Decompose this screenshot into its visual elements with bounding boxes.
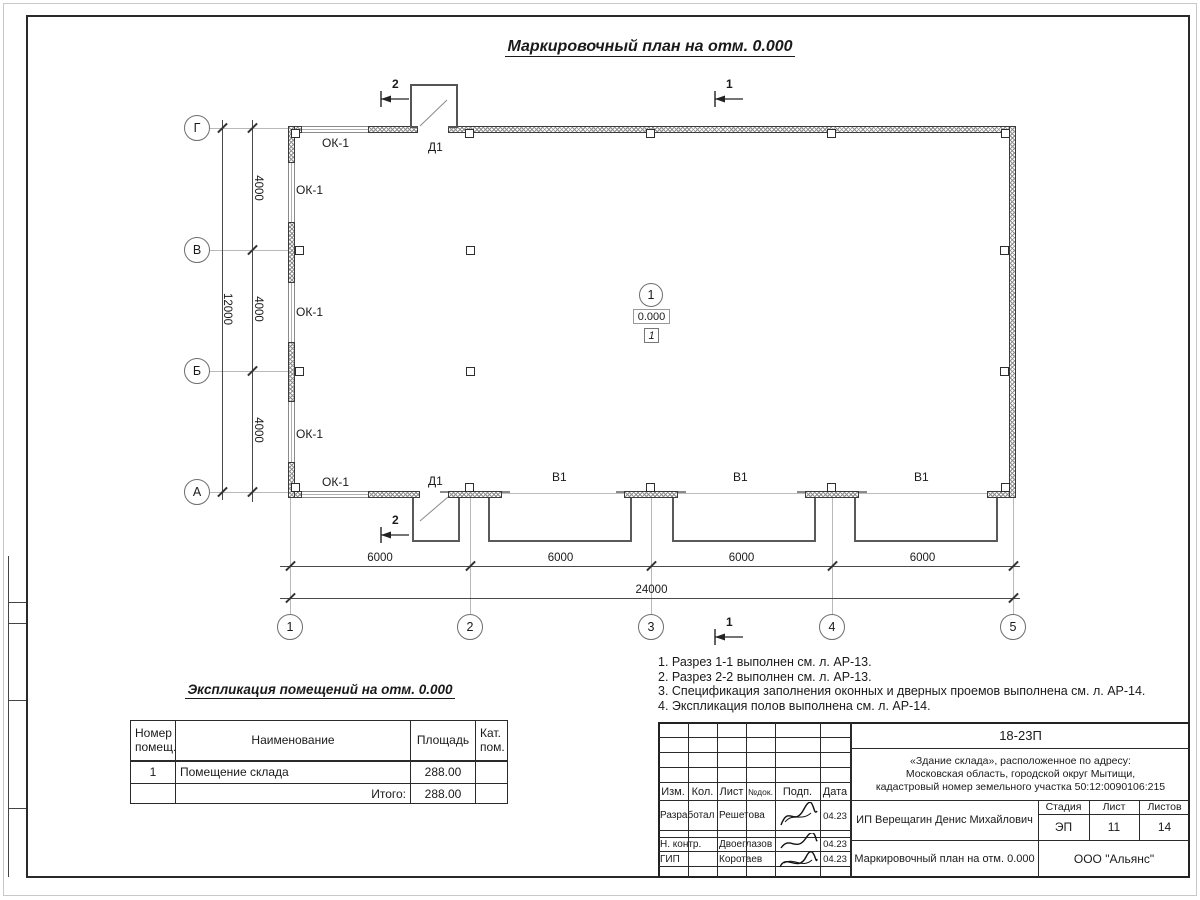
column-mark [646, 129, 655, 138]
room-row-cat [476, 761, 508, 784]
axis-label: В [193, 243, 201, 257]
notes-block: 1. Разрез 1-1 выполнен см. л. АР-13. 2. … [658, 655, 1145, 713]
dim-line-total [280, 598, 1020, 599]
dim-value: 6000 [470, 552, 651, 564]
room-row-area: 288.00 [411, 761, 476, 784]
sheet-value: 11 [1089, 814, 1139, 840]
stamp-grid-line [658, 752, 850, 753]
signature-nkontr-gip [776, 833, 820, 875]
stamp-col-ndok: №док. [746, 783, 775, 800]
role-name: Решетова [719, 810, 775, 821]
dim-value-left: 4000 [252, 412, 264, 448]
window-label: ОК-1 [322, 136, 349, 150]
note-line: 2. Разрез 2-2 выполнен см. л. АР-13. [658, 670, 1145, 685]
gate-label: В1 [914, 470, 929, 484]
role-date: 04.23 [820, 853, 850, 866]
note-line: 4. Экспликация полов выполнена см. л. АР… [658, 699, 1145, 714]
axis-bubble-5: 5 [1000, 614, 1026, 640]
section-number: 2 [392, 513, 399, 527]
axis-label: 3 [648, 620, 655, 634]
explication-table: Номер помещ. Наименование Площадь Кат. п… [130, 720, 508, 804]
axis-label: 4 [829, 620, 836, 634]
dim-value-left: 4000 [252, 291, 264, 327]
section-arrow-2-bottom [377, 524, 413, 546]
window-label: ОК-1 [296, 305, 323, 319]
column-mark [295, 367, 304, 376]
stamp-grid-line [658, 830, 850, 831]
gate-frame-stub [797, 491, 805, 493]
window-left-2 [288, 283, 295, 342]
dim-total-value: 24000 [290, 584, 1013, 596]
window-left-3 [288, 402, 295, 462]
role-label: Разработал [660, 810, 718, 821]
stamp-grid-line [658, 737, 850, 738]
role-name: Двоеглазов [719, 839, 775, 850]
floor-type-value: 1 [648, 330, 654, 342]
col-header-cat: Кат. пом. [476, 721, 508, 761]
dim-value-left: 4000 [252, 170, 264, 206]
gate-ramp-3 [854, 498, 998, 542]
stamp-grid-line [658, 851, 850, 852]
wall-right [1009, 126, 1016, 498]
stamp-grid-line [658, 767, 850, 768]
plan-title-text: Маркировочный план на отм. 0.000 [505, 38, 794, 57]
plan-title: Маркировочный план на отм. 0.000 [400, 38, 900, 56]
wall-left-pier-v [288, 222, 295, 283]
col-header-name: Наименование [176, 721, 411, 761]
client-name: ИП Верещагин Денис Михайлович [851, 800, 1038, 840]
axis-label: 2 [467, 620, 474, 634]
project-code: 18-23П [851, 722, 1190, 748]
explication-title-text: Экспликация помещений на отм. 0.000 [185, 682, 454, 699]
col-header-num: Номер помещ. [131, 721, 176, 761]
axis-label: Б [193, 364, 201, 378]
wall-left-corner-bottom [288, 462, 295, 498]
stamp-grid-line [658, 866, 850, 867]
room-row-num: 1 [131, 761, 176, 784]
door-label-bottom: Д1 [428, 474, 443, 488]
window-top [302, 126, 368, 133]
axis-bubble-4: 4 [819, 614, 845, 640]
column-mark [1000, 367, 1009, 376]
margin-box-divider [8, 700, 26, 701]
wall-left-pier-b [288, 342, 295, 402]
gate-frame-stub [616, 491, 624, 493]
dim-value: 6000 [832, 552, 1013, 564]
axis-bubble-a: А [184, 479, 210, 505]
gate-frame-stub [440, 491, 448, 493]
axis-label: А [193, 485, 201, 499]
stamp-grid-line [658, 800, 850, 801]
drawing-sheet: Маркировочный план на отм. 0.000 [0, 0, 1200, 900]
axis-bubble-3: 3 [638, 614, 664, 640]
sheets-value: 14 [1139, 814, 1190, 840]
sheet-label: Лист [1089, 800, 1139, 814]
margin-box-line [8, 556, 9, 877]
gate-leaf-2 [678, 493, 805, 494]
column-mark [291, 129, 300, 138]
margin-box-divider [8, 602, 26, 603]
dim-value: 6000 [651, 552, 832, 564]
column-mark [646, 483, 655, 492]
door-label-top: Д1 [428, 140, 443, 154]
total-area: 288.00 [411, 784, 476, 804]
total-row-cat [476, 784, 508, 804]
window-bottom [302, 491, 368, 498]
column-mark [465, 483, 474, 492]
section-number: 1 [726, 615, 733, 629]
axis-label: 1 [287, 620, 294, 634]
stamp-col-izm: Изм. [658, 783, 688, 800]
elevation-mark: 0.000 [633, 309, 670, 324]
stamp-col-podp: Подп. [775, 783, 820, 800]
section-number: 1 [726, 77, 733, 91]
gate-frame-stub [678, 491, 686, 493]
column-mark [827, 129, 836, 138]
role-name: Коротаев [719, 854, 775, 865]
stage-label: Стадия [1038, 800, 1089, 814]
section-arrow-2-top [377, 88, 413, 110]
margin-box-divider [8, 808, 26, 809]
column-mark [291, 483, 300, 492]
gate-label: В1 [733, 470, 748, 484]
floor-type-mark: 1 [644, 328, 659, 343]
note-line: 1. Разрез 1-1 выполнен см. л. АР-13. [658, 655, 1145, 670]
axis-bubble-1: 1 [277, 614, 303, 640]
stamp-col-list: Лист [717, 783, 746, 800]
axis-bubble-2: 2 [457, 614, 483, 640]
door-swing-bottom [414, 494, 454, 524]
col-header-area: Площадь [411, 721, 476, 761]
door-swing-top [414, 96, 454, 130]
role-date: 04.23 [820, 808, 850, 824]
axis-bubble-b: Б [184, 358, 210, 384]
gate-label: В1 [552, 470, 567, 484]
role-label: Н. контр. [660, 839, 718, 850]
window-left-1 [288, 163, 295, 222]
explication-title: Экспликация помещений на отм. 0.000 [130, 682, 510, 697]
room-row-name: Помещение склада [176, 761, 411, 784]
wall-bottom-pier-axis3 [624, 491, 678, 498]
project-description: «Здание склада», расположенное по адресу… [851, 748, 1190, 800]
wall-bottom-pier [368, 491, 420, 498]
stamp-col-data: Дата [820, 783, 850, 800]
column-mark-interior [466, 246, 475, 255]
column-mark-interior [466, 367, 475, 376]
gate-leaf-3 [859, 493, 987, 494]
gate-ramp-1 [488, 498, 632, 542]
total-label: Итого: [176, 784, 411, 804]
room-number: 1 [648, 288, 655, 302]
column-mark [465, 129, 474, 138]
wall-bottom-pier-axis2 [448, 491, 502, 498]
column-mark [1001, 483, 1010, 492]
drawing-name: Маркировочный план на отм. 0.000 [851, 840, 1038, 878]
column-mark [1001, 129, 1010, 138]
dim-total-left: 12000 [221, 287, 233, 331]
sheets-label: Листов [1139, 800, 1190, 814]
role-date: 04.23 [820, 838, 850, 851]
role-label: ГИП [660, 854, 718, 865]
note-line: 3. Спецификация заполнения оконных и две… [658, 684, 1145, 699]
axis-bubble-g: Г [184, 115, 210, 141]
gate-ramp-2 [672, 498, 816, 542]
section-arrow-1-bottom [711, 626, 747, 648]
elevation-value: 0.000 [638, 311, 666, 323]
room-number-bubble: 1 [639, 283, 663, 307]
axis-label: 5 [1010, 620, 1017, 634]
gate-frame-stub [502, 491, 510, 493]
section-number: 2 [392, 77, 399, 91]
company-name: ООО "Альянс" [1038, 840, 1190, 878]
total-row-empty [131, 784, 176, 804]
dim-value: 6000 [290, 552, 470, 564]
signature-razrabotal [777, 802, 820, 830]
gate-frame-stub [859, 491, 867, 493]
gate-leaf-1 [502, 493, 624, 494]
column-mark [827, 483, 836, 492]
column-mark [295, 246, 304, 255]
wall-top [448, 126, 1016, 133]
margin-box-divider [8, 623, 26, 624]
axis-label: Г [194, 121, 201, 135]
window-label: ОК-1 [296, 183, 323, 197]
stage-value: ЭП [1038, 814, 1089, 840]
column-mark [1000, 246, 1009, 255]
stamp-col-kol: Кол. [688, 783, 717, 800]
wall-bottom-pier-axis4 [805, 491, 859, 498]
section-arrow-1-top [711, 88, 747, 110]
axis-bubble-v: В [184, 237, 210, 263]
window-label: ОК-1 [296, 427, 323, 441]
window-label: ОК-1 [322, 475, 349, 489]
